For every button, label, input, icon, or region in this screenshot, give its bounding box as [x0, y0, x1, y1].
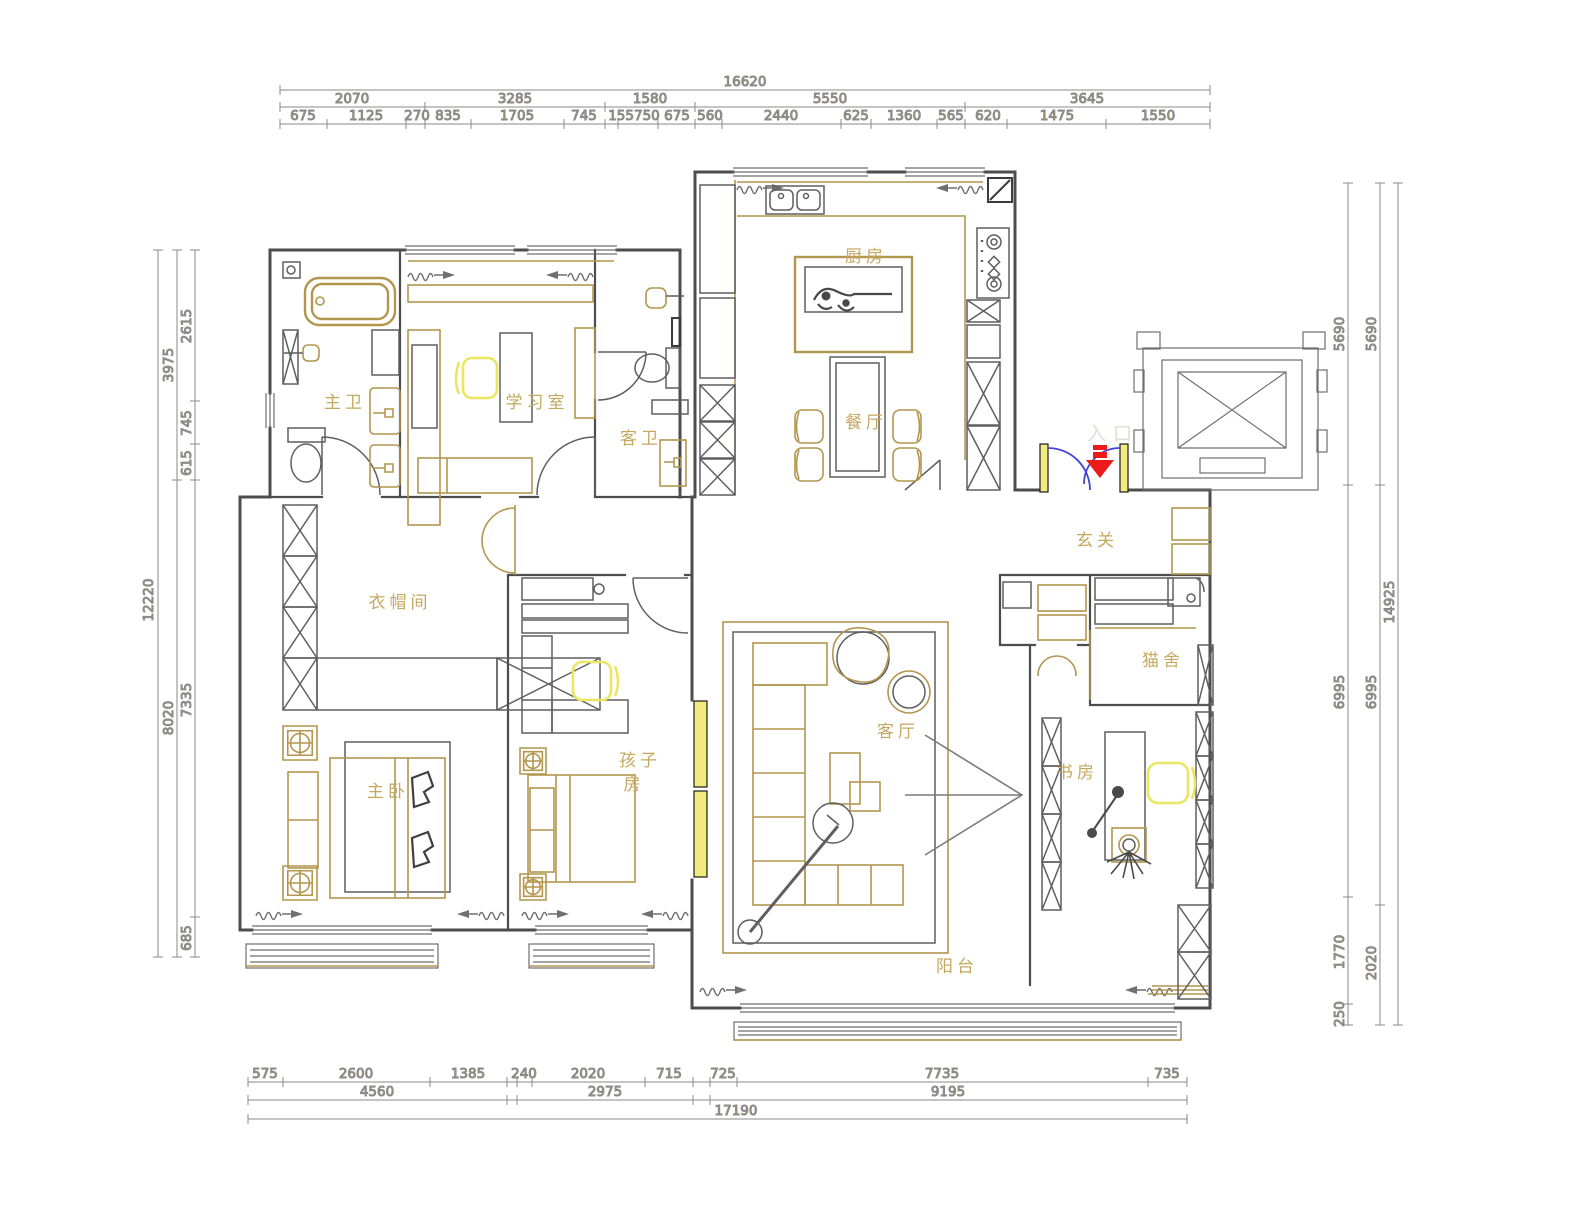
dim-bottom-sub: 7735 — [925, 1066, 959, 1082]
floor-lamp — [738, 803, 853, 944]
living-rug-inner — [733, 632, 935, 943]
dim-left-sub: 7335 — [179, 683, 195, 717]
room-labels: 主卫 学习室 客卫 厨房 餐厅 玄关 衣帽间 主卧 孩子 房 客厅 猫舍 书房 … — [324, 247, 1184, 977]
dim-top-sub: 620 — [975, 108, 1001, 124]
dim-bottom-sub: 735 — [1154, 1066, 1180, 1082]
balcony-side-cabinets — [1178, 905, 1211, 999]
cattery-double-door — [1038, 656, 1076, 676]
nightstand — [520, 748, 546, 774]
dim-top-sub: 625 — [843, 108, 869, 124]
room-label-cattery: 猫舍 — [1142, 651, 1184, 671]
dim-top-total: 16620 — [724, 74, 767, 90]
flue-symbol — [988, 178, 1012, 202]
right-dimensions: 5690 6995 1770 250 5690 6995 2020 14925 — [1332, 183, 1403, 1027]
sofa — [753, 643, 903, 905]
dim-right-inner: 1770 — [1332, 935, 1348, 969]
dim-bottom-sub: 2020 — [571, 1066, 605, 1082]
room-label-kitchen: 厨房 — [845, 247, 887, 267]
dim-top-sub: 2440 — [764, 108, 798, 124]
study-furniture — [1042, 712, 1213, 999]
study-room-door-arc — [537, 437, 595, 495]
dim-top-seg: 3645 — [1070, 91, 1104, 107]
bottom-dimensions: 575 2600 1385 240 2020 715 725 7735 735 … — [248, 1066, 1187, 1124]
kids-bed — [528, 775, 635, 882]
dim-top-sub: 270 — [404, 108, 430, 124]
elevator-car-icon — [1178, 372, 1286, 448]
dim-left-sub: 615 — [179, 450, 195, 476]
dim-bottom-sub: 2600 — [339, 1066, 373, 1082]
coffee-tables — [830, 753, 880, 811]
dim-top-sub: 1705 — [500, 108, 534, 124]
dim-top-sub: 675 — [290, 108, 316, 124]
toilet-guest — [635, 348, 680, 388]
left-dimensions: 12220 3975 8020 2615 745 615 7335 685 — [141, 250, 200, 957]
floor-plan-drawing: 16620 2070 3285 1580 5550 3645 675 1125 … — [0, 0, 1582, 1224]
stove — [977, 228, 1009, 298]
dim-top-seg: 5550 — [813, 91, 847, 107]
dim-bottom-mid: 9195 — [931, 1084, 965, 1100]
dim-top-sub: 835 — [435, 108, 461, 124]
kitchen-fixtures — [700, 178, 1012, 495]
room-label-kids-room: 孩子 — [619, 751, 661, 771]
room-label-study: 书房 — [1056, 763, 1098, 783]
living-sliding-doors — [694, 701, 707, 877]
dim-left-seg: 8020 — [161, 701, 177, 735]
kitchen-sink — [766, 186, 824, 214]
dim-right-inner: 6995 — [1332, 675, 1348, 709]
study-chair — [1148, 763, 1195, 803]
kitchen-cabinet-column — [700, 185, 735, 495]
top-dimensions: 16620 2070 3285 1580 5550 3645 675 1125 … — [280, 74, 1210, 129]
dim-right-inner: 250 — [1332, 1001, 1348, 1027]
desk-chair — [456, 358, 497, 398]
room-label-kids-room: 房 — [624, 775, 645, 795]
interior-doors — [322, 352, 1076, 877]
dim-top-seg: 2070 — [335, 91, 369, 107]
toilet-master — [288, 428, 325, 482]
dim-top-sub: 565 — [938, 108, 964, 124]
dim-left-sub: 2615 — [179, 309, 195, 343]
island-faucet-art — [814, 289, 892, 311]
room-label-cloakroom: 衣帽间 — [369, 593, 432, 613]
vanity-column — [370, 330, 400, 487]
dim-bottom-total: 17190 — [715, 1103, 758, 1119]
kids-room-furniture — [520, 578, 635, 900]
dim-left-seg: 3975 — [161, 348, 177, 382]
dim-left-sub: 745 — [179, 410, 195, 436]
wall-faucet — [303, 345, 319, 361]
dim-bottom-mid: 4560 — [360, 1084, 394, 1100]
dim-bottom-sub: 240 — [511, 1066, 537, 1082]
room-label-living: 客厅 — [877, 722, 919, 742]
dim-bottom-sub: 725 — [710, 1066, 736, 1082]
pillows — [412, 772, 433, 867]
projection-lines — [905, 735, 1022, 855]
dim-top-sub: 1550 — [1141, 108, 1175, 124]
elevator-door — [1200, 458, 1265, 473]
dim-right-total: 14925 — [1382, 581, 1398, 624]
cattery-fixtures — [1090, 578, 1213, 705]
room-label-master-bedroom: 主卧 — [367, 782, 409, 802]
room-label-dining: 餐厅 — [845, 413, 887, 433]
dim-top-sub: 1125 — [349, 108, 383, 124]
bed-rug — [345, 742, 450, 892]
room-label-guest-bath: 客卫 — [620, 429, 662, 449]
kids-room-door-arc — [633, 578, 688, 633]
nightstand — [520, 874, 546, 900]
entry-door-jamb-right — [1120, 444, 1128, 492]
dim-top-sub: 675 — [664, 108, 690, 124]
entrance-faint-label: 入口 — [1087, 423, 1139, 445]
dim-top-seg: 3285 — [498, 91, 532, 107]
dim-left-total: 12220 — [141, 579, 157, 622]
armchairs — [833, 628, 930, 713]
dim-top-sub: 560 — [697, 108, 723, 124]
floor-plan-canvas: 16620 2070 3285 1580 5550 3645 675 1125 … — [0, 0, 1582, 1224]
dim-top-sub: 155750 — [608, 108, 660, 124]
dim-right-mid: 6995 — [1364, 675, 1380, 709]
elevator-shaft — [1134, 332, 1327, 490]
dim-top-sub: 745 — [571, 108, 597, 124]
dim-top-sub: 1475 — [1040, 108, 1074, 124]
nightstand — [283, 726, 317, 760]
room-label-study-room: 学习室 — [506, 393, 569, 413]
living-room-furniture — [723, 622, 1022, 953]
room-label-master-bath: 主卫 — [324, 393, 366, 413]
dim-left-sub: 685 — [179, 925, 195, 951]
dim-top-sub: 1360 — [887, 108, 921, 124]
master-bedroom-furniture — [283, 726, 450, 900]
dim-top-seg: 1580 — [633, 91, 667, 107]
nightstand — [283, 866, 317, 900]
dim-bottom-sub: 715 — [656, 1066, 682, 1082]
room-label-foyer: 玄关 — [1076, 531, 1118, 551]
master-bath-fixtures — [283, 262, 400, 487]
dim-right-inner: 5690 — [1332, 317, 1348, 351]
cloakroom-double-door — [482, 505, 515, 575]
entry-door: 入口 — [1040, 423, 1139, 492]
interior-walls — [270, 250, 1210, 985]
dim-bottom-sub: 1385 — [451, 1066, 485, 1082]
room-label-balcony: 阳台 — [936, 957, 978, 977]
kitchen-island — [795, 257, 912, 352]
dim-bottom-mid: 2975 — [588, 1084, 622, 1100]
guest-vanity — [660, 440, 686, 486]
dim-bottom-sub: 575 — [252, 1066, 278, 1082]
guest-basin — [646, 288, 666, 308]
entry-door-jamb-left — [1040, 444, 1048, 492]
curtain-symbols — [256, 184, 1172, 996]
dim-right-mid: 2020 — [1364, 946, 1380, 980]
dim-right-mid: 5690 — [1364, 317, 1380, 351]
